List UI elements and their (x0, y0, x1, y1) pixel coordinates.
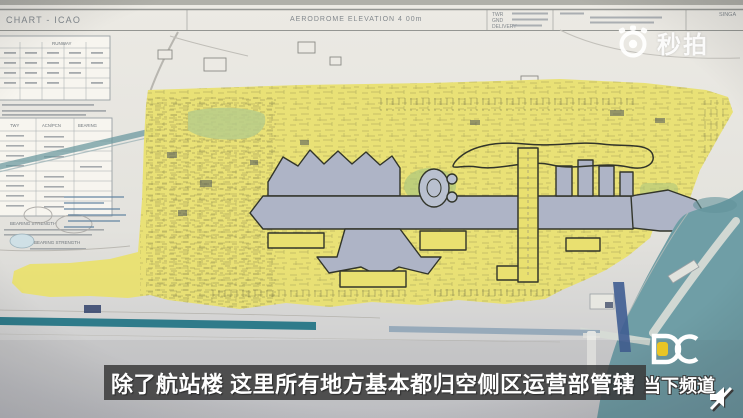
miaopai-watermark: 秒拍 (616, 24, 709, 60)
video-frame: CHART - ICAO AERODROME ELEVATION 4 00m T… (0, 0, 743, 418)
channel-name: 当下频道 (643, 372, 715, 398)
aerodrome-chart-photo: CHART - ICAO AERODROME ELEVATION 4 00m T… (0, 0, 743, 418)
dc-channel-logo (650, 333, 700, 365)
watermark-text: 秒拍 (657, 25, 709, 60)
subtitle-text: 除了航站楼 这里所有地方基本都归空侧区运营部管辖 (104, 367, 635, 399)
miaopai-camera-icon (616, 24, 650, 60)
mute-speaker-icon[interactable] (707, 384, 739, 412)
subtitle-bar: 除了航站楼 这里所有地方基本都归空侧区运营部管辖 (104, 365, 646, 400)
